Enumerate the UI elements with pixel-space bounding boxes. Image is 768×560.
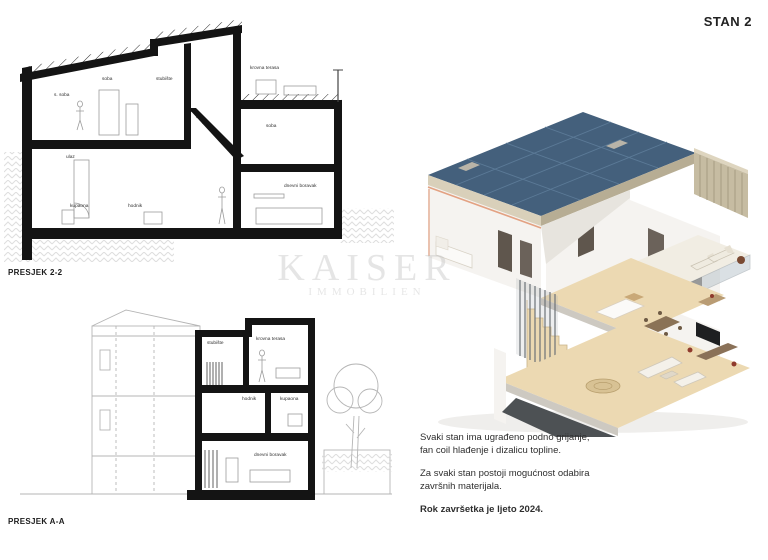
room-label: krovna terasa — [250, 65, 279, 71]
room-label: kupaona — [70, 203, 89, 209]
apartment-3d-render — [398, 50, 768, 440]
context-outline — [20, 310, 392, 494]
room-label: stubište — [207, 340, 224, 346]
notes-block: Svaki stan ima ugrađeno podno grijanje, … — [420, 432, 650, 528]
section-caption-2-2: PRESJEK 2-2 — [8, 268, 62, 277]
room-label: soba — [266, 123, 277, 129]
room-label: kupaona — [280, 396, 299, 402]
terrace-plant — [737, 256, 745, 264]
section-drawing-a-a: stubište krovna terasa hodnik kupaona dn… — [4, 298, 394, 513]
fixtures-aa — [226, 350, 302, 482]
room-label: soba — [102, 76, 113, 82]
note-heating: Svaki stan ima ugrađeno podno grijanje, … — [420, 432, 650, 457]
room-label: s. soba — [54, 92, 70, 98]
room-label: krovna terasa — [256, 336, 285, 342]
room-label: hodnik — [128, 203, 143, 209]
roof-hatch — [20, 19, 342, 100]
room-label: dnevni boravak — [254, 452, 287, 458]
note-deadline: Rok završetka je ljeto 2024. — [420, 504, 650, 517]
note-materials: Za svaki stan postoji mogućnost odabira … — [420, 468, 650, 493]
room-label: ulaz — [66, 154, 75, 160]
room-label: hodnik — [242, 396, 257, 402]
flyer-page: STAN 2 KAISER IMMOBILIEN — [0, 0, 768, 560]
room-label: stubište — [156, 76, 173, 82]
section-drawing-2-2: s. soba soba stubište krovna terasa ulaz… — [4, 12, 394, 267]
room-label: dnevni boravak — [284, 183, 317, 189]
unit-label: STAN 2 — [704, 14, 752, 29]
pergola-slats — [694, 148, 748, 218]
tree-sketch — [327, 364, 382, 468]
section-caption-a-a: PRESJEK A-A — [8, 517, 65, 526]
